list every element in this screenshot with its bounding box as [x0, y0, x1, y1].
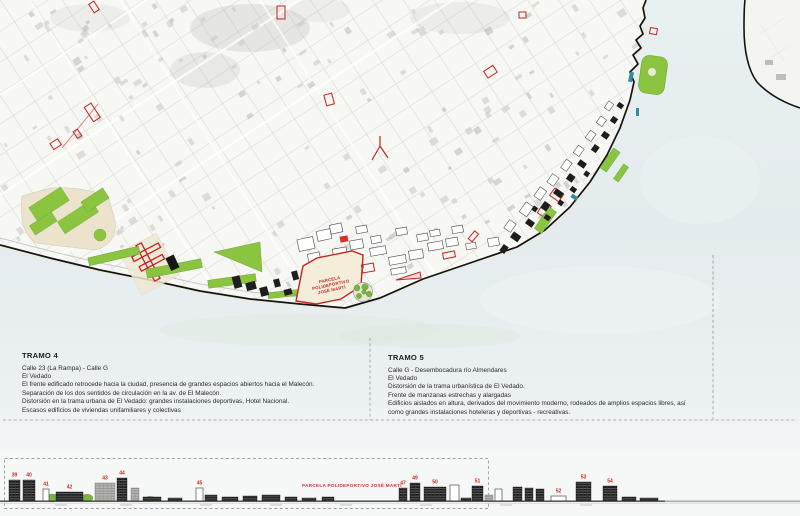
text-line: Calle G - Desembocadura río Almendares [388, 367, 718, 375]
elevation-parcela-label: PARCELA POLIDEPORTIVO JOSÉ MARTÍ [302, 481, 402, 488]
elevation-building [322, 497, 334, 501]
shallow-water-tint [340, 324, 520, 348]
building-number-43: 43 [102, 476, 108, 482]
elevation-building [622, 497, 636, 501]
building-number-52: 52 [556, 489, 562, 495]
water-highlight [480, 266, 720, 334]
text-line: El Vedado [388, 375, 718, 383]
elevation-building-54 [603, 486, 617, 501]
elevation-building [243, 496, 257, 501]
elevation-building [525, 488, 533, 501]
text-line: Escasos edificios de viviendas unifamili… [22, 407, 374, 415]
building-number-44: 44 [119, 471, 125, 477]
elevation-building [143, 497, 161, 501]
tramo-5-section: TRAMO 5 Calle G - Desembocadura río Alme… [388, 353, 718, 417]
elevation-building [222, 497, 238, 501]
elevation-building-39 [9, 480, 20, 501]
elevation-building-53 [576, 482, 591, 501]
urban-analysis-panel: PARCELAPOLIDEPORTIVOJOSÉ MARTÍ [0, 0, 800, 516]
building-number-54: 54 [607, 479, 613, 485]
elevation-building-52 [551, 496, 566, 501]
elevation-building-40 [23, 480, 35, 501]
elevation-building-47 [399, 488, 407, 501]
water-highlight [640, 136, 760, 224]
elevation-building [302, 498, 316, 501]
elevation-building [513, 487, 522, 501]
elevation-building [495, 489, 502, 501]
text-line: Distorsión de la trama urbanística de El… [388, 383, 718, 391]
elevation-building [461, 498, 471, 501]
elevation-building [450, 485, 459, 501]
elevation-building-43 [95, 483, 115, 501]
text-line: El Vedado [22, 373, 374, 381]
text-line: Distorsión en la trama urbana de El Veda… [22, 398, 374, 406]
text-line: Edificios aislados en altura, derivados … [388, 400, 718, 408]
text-line: como grandes instalaciones hoteleras y d… [388, 409, 718, 417]
tramo-5-heading: TRAMO 5 [388, 353, 718, 362]
building-number-51: 51 [475, 479, 481, 485]
text-line: Separación de los dos sentidos de circul… [22, 390, 374, 398]
elevation-building [131, 488, 139, 501]
elevation-building [262, 495, 280, 501]
building-number-40: 40 [26, 473, 32, 479]
elevation-building-41 [43, 489, 49, 501]
elevation-building [640, 498, 658, 501]
building-number-53: 53 [581, 475, 587, 481]
map-and-elevation-drawing: PARCELAPOLIDEPORTIVOJOSÉ MARTÍ [0, 0, 800, 516]
building-number-45: 45 [197, 481, 203, 487]
baseball-diamond [648, 68, 656, 76]
building-number-41: 41 [43, 482, 49, 488]
text-line: Frente de manzanas estrechas y alargadas [388, 392, 718, 400]
elevation-building-49 [410, 483, 420, 501]
text-line: Calle 23 (La Rampa) - Calle G [22, 365, 374, 373]
building-number-50: 50 [432, 480, 438, 486]
elevation-building-45 [196, 488, 203, 501]
elevation-building [168, 498, 182, 501]
elevation-building-51 [472, 486, 483, 501]
tramo-4-heading: TRAMO 4 [22, 351, 374, 360]
text-line: El frente edificado retrocede hacia la c… [22, 381, 374, 389]
elevation-building-50 [424, 487, 446, 501]
building-number-39: 39 [12, 473, 18, 479]
elevation-building [485, 495, 493, 501]
tramo-5-description: Calle G - Desembocadura río AlmendaresEl… [388, 367, 718, 418]
tramo-4-description: Calle 23 (La Rampa) - Calle GEl VedadoEl… [22, 365, 374, 416]
building-number-49: 49 [412, 476, 418, 482]
elevation-building [205, 495, 217, 501]
tramo-4-section: TRAMO 4 Calle 23 (La Rampa) - Calle GEl … [22, 351, 374, 415]
elevation-building [285, 497, 297, 501]
elevation-building-42 [56, 492, 83, 501]
elevation-building [536, 489, 544, 501]
elevation-building-44 [117, 478, 127, 501]
building-number-42: 42 [67, 485, 73, 491]
